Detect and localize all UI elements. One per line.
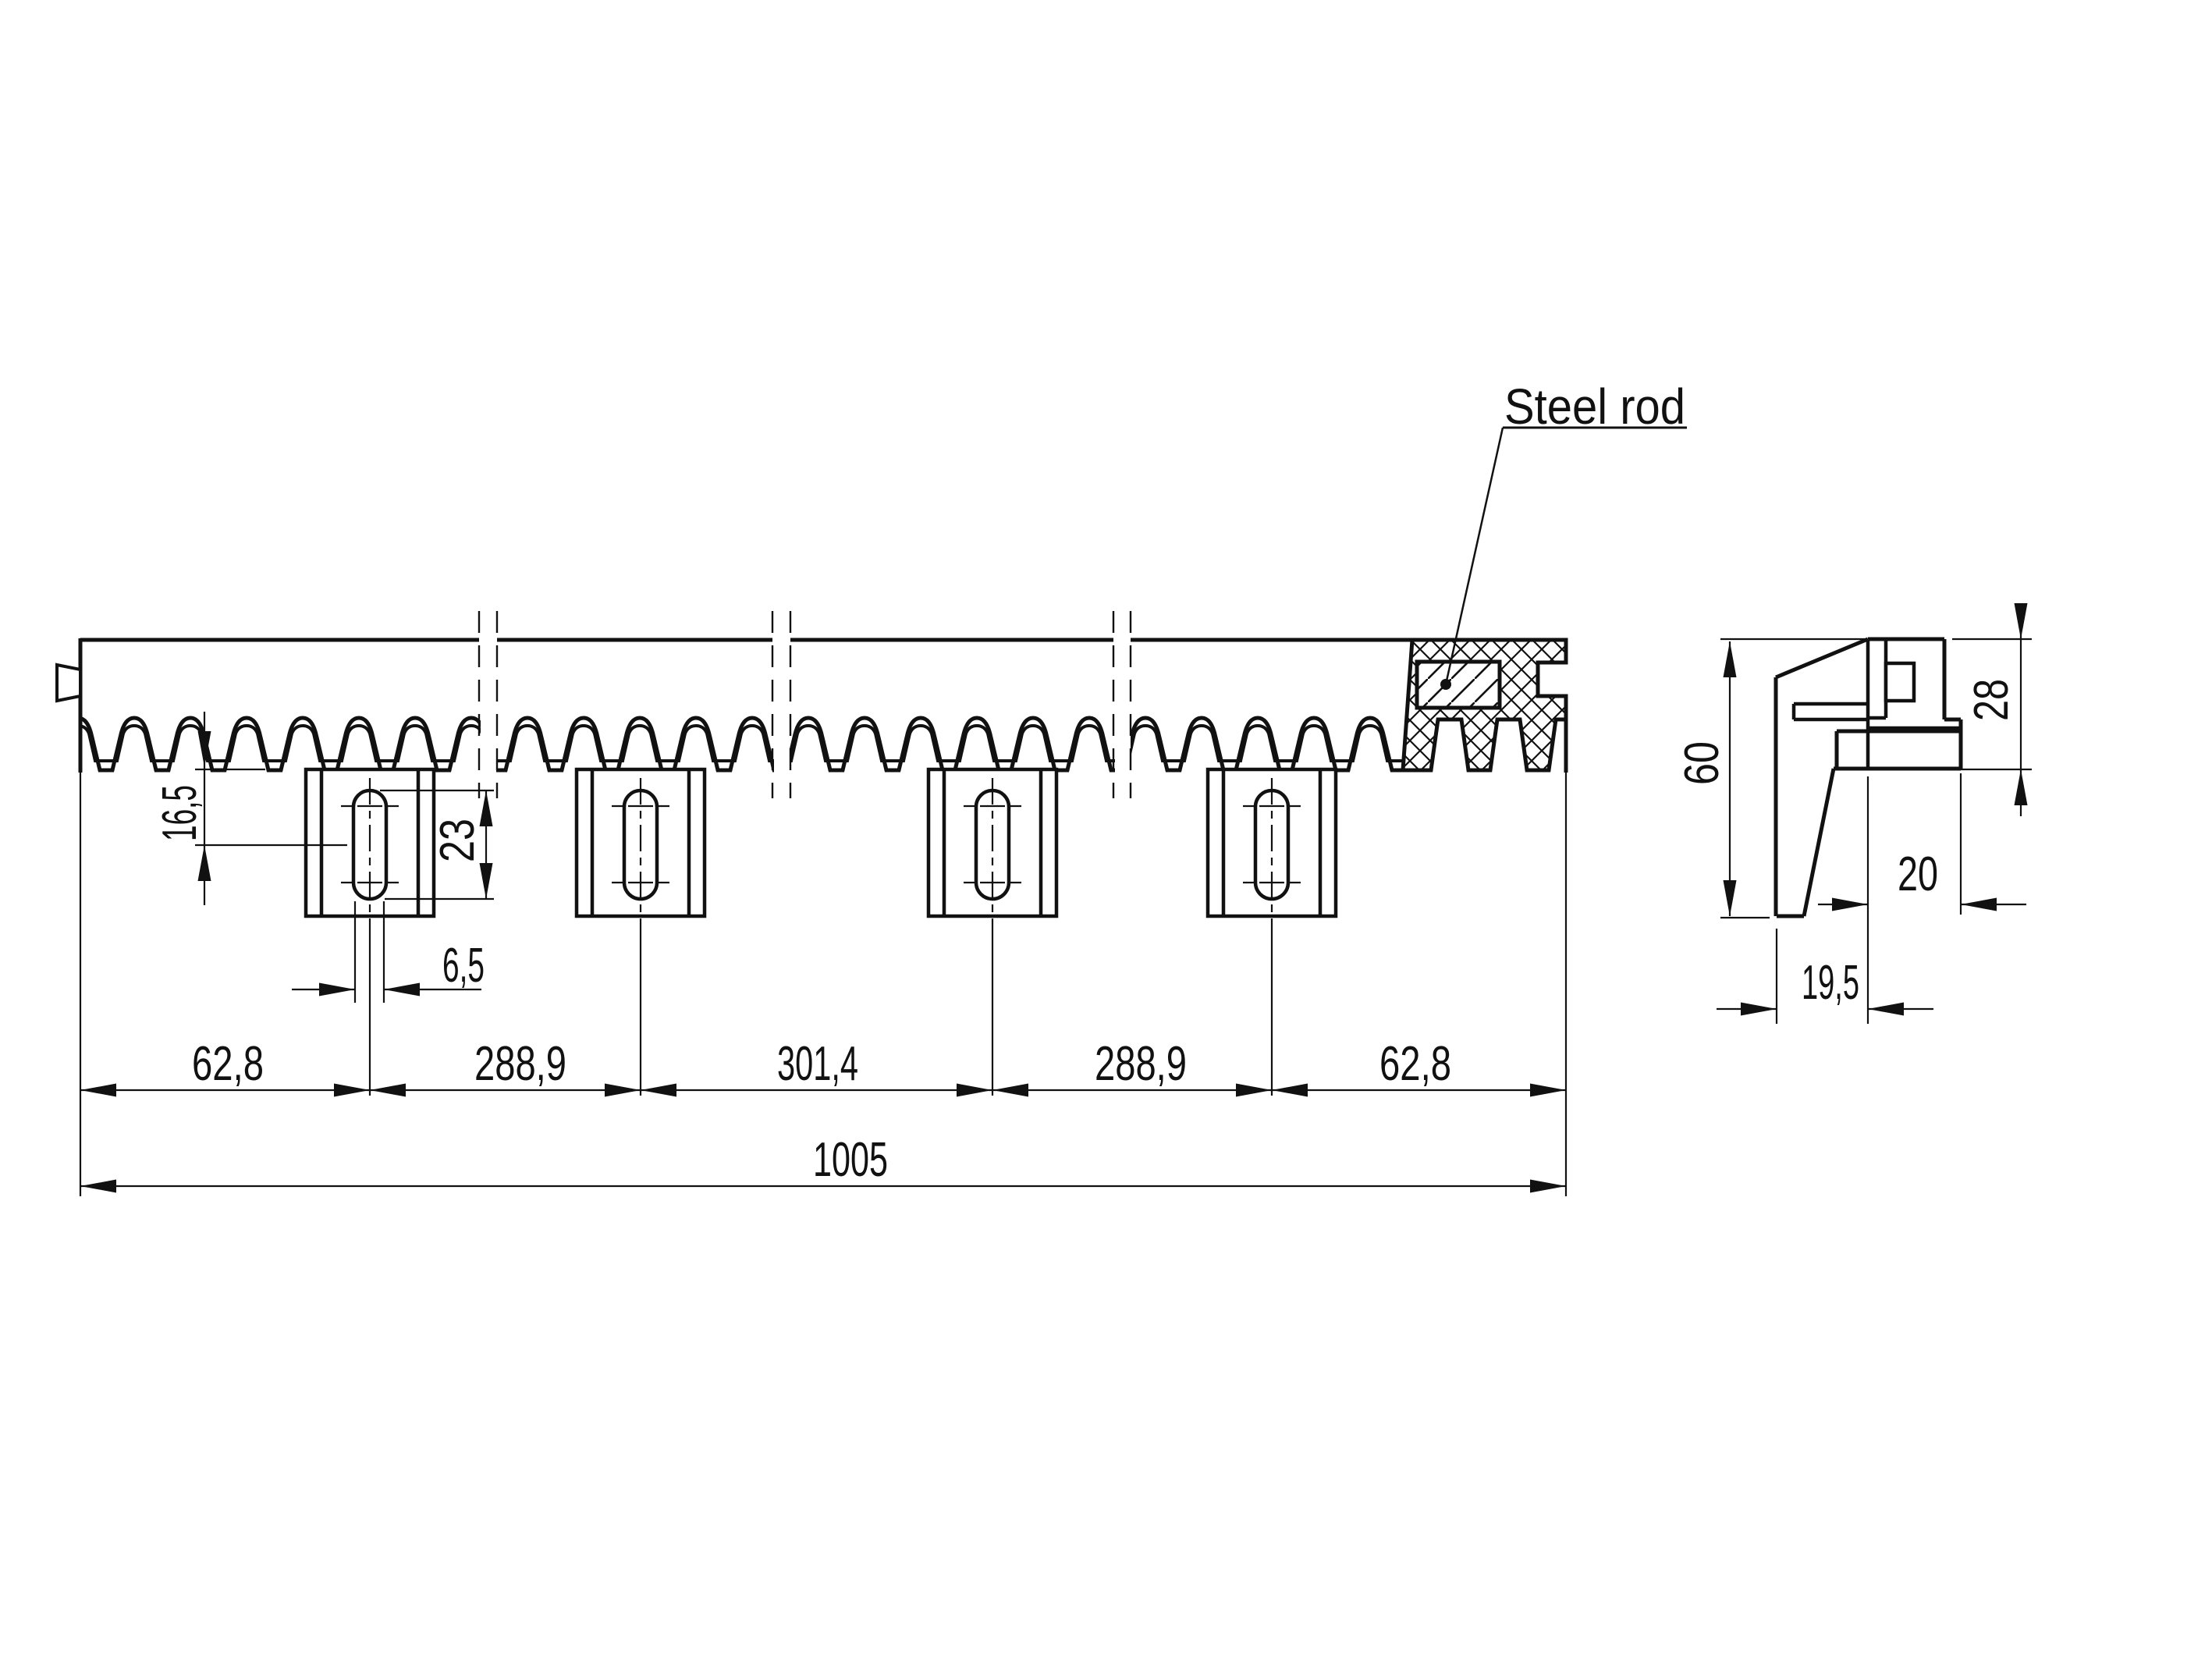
dim-label-60: 60 (1675, 741, 1729, 785)
dim-label-288-9-right: 288,9 (1095, 1037, 1187, 1091)
dim-label-62-8-left: 62,8 (192, 1037, 264, 1091)
dim-label-6-5: 6,5 (442, 939, 485, 993)
dim-label-288-9-left: 288,9 (474, 1037, 566, 1091)
gear-rack-technical-drawing: Steel rod 16,5 23 6,5 62,8 288,9 301,4 2… (0, 0, 2212, 1659)
drawing-canvas: Steel rod 16,5 23 6,5 62,8 288,9 301,4 2… (0, 0, 2212, 1659)
dim-label-23: 23 (431, 819, 485, 862)
drawing-linework (19, 428, 2032, 1196)
dim-label-19-5: 19,5 (1802, 956, 1859, 1010)
dim-label-20: 20 (1898, 847, 1938, 901)
dim-label-28: 28 (1965, 679, 2018, 721)
dim-label-301-4: 301,4 (777, 1037, 858, 1091)
steel-rod-label: Steel rod (1504, 378, 1685, 435)
dim-label-62-8-right: 62,8 (1379, 1037, 1451, 1091)
dim-label-1005: 1005 (813, 1133, 888, 1187)
dim-label-16-5: 16,5 (153, 785, 207, 841)
